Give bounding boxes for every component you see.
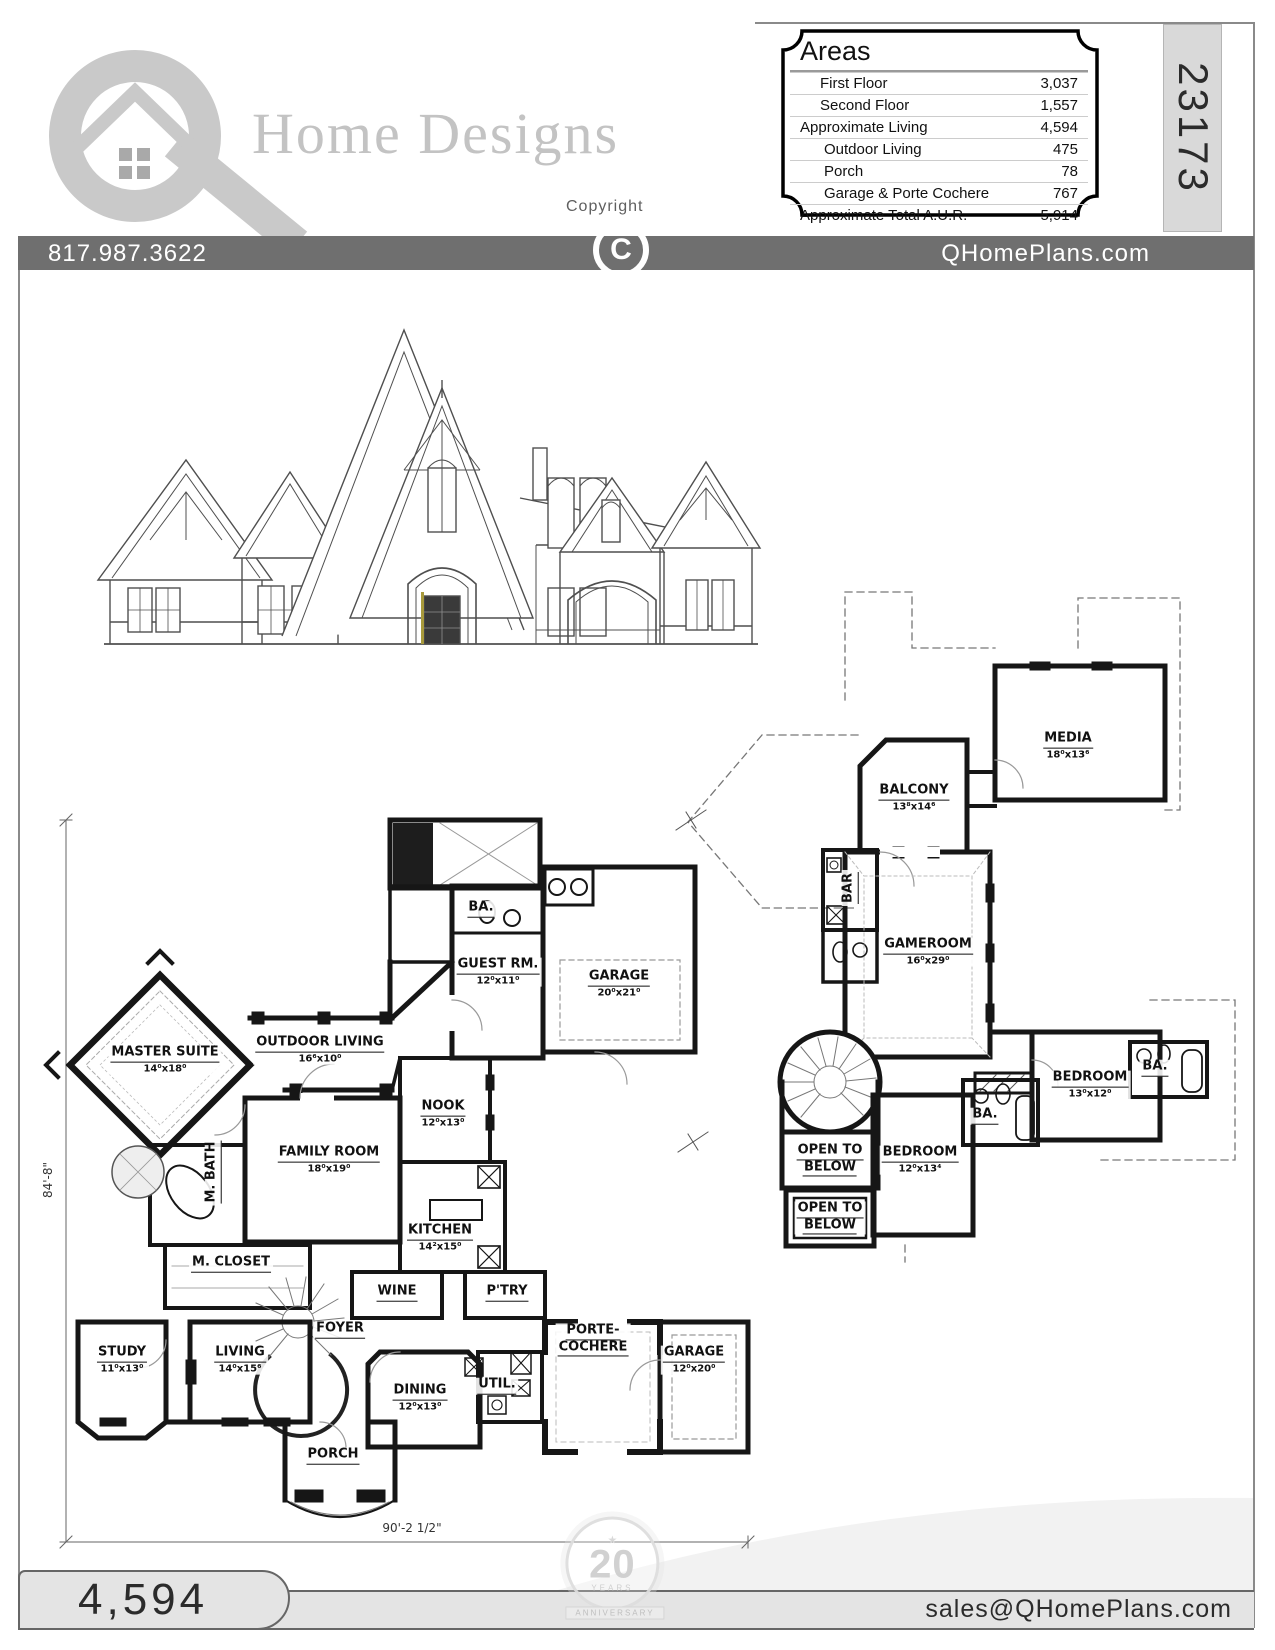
anniversary-wreath-icon: ★ 20 YEARS: [565, 1517, 659, 1611]
elevation-drawing: [98, 330, 760, 644]
room-label-bar: BAR: [842, 870, 859, 906]
room-label-bath-middle: BA.: [969, 1108, 1000, 1125]
room-label-gameroom: GAMEROOM 16⁰x29⁰: [881, 938, 975, 967]
room-label-family-room: FAMILY ROOM 18⁰x19⁰: [276, 1146, 382, 1175]
areas-row-porch: Porch 78: [790, 160, 1088, 182]
room-label-garage-1: GARAGE 20⁰x21⁰: [586, 970, 652, 999]
room-label-master-closet: M. CLOSET: [189, 1256, 273, 1273]
living-area-pill: 4,594: [18, 1570, 290, 1630]
room-label-dining: DINING 12⁰x13⁰: [391, 1384, 450, 1413]
room-label-guest-bath: BA.: [465, 901, 496, 918]
copyright-symbol-icon: C: [593, 222, 649, 278]
room-label-media: MEDIA 18⁰x13⁶: [1041, 732, 1095, 761]
areas-row-first-floor: First Floor 3,037: [790, 72, 1088, 94]
room-label-study: STUDY 11⁰x13⁰: [95, 1346, 149, 1375]
label-open-to-below-2: OPEN TO BELOW: [795, 1201, 866, 1234]
room-label-master-suite: MASTER SUITE 14⁰x18⁰: [108, 1046, 221, 1075]
anniversary-badge: ★ 20 YEARS ANNIVERSARY: [565, 1517, 664, 1620]
label-open-to-below-1: OPEN TO BELOW: [795, 1143, 866, 1176]
room-label-utility: UTIL.: [475, 1378, 518, 1395]
room-label-bedroom-3: BEDROOM 13⁰x12⁰: [1050, 1071, 1131, 1100]
room-label-living: LIVING 14⁰x15⁶: [212, 1346, 268, 1375]
room-label-kitchen: KITCHEN 14²x15⁰: [405, 1224, 475, 1253]
spiral-staircase-second-floor: [780, 1032, 880, 1132]
areas-row-garage-porte-cochere: Garage & Porte Cochere 767: [790, 182, 1088, 204]
room-label-balcony: BALCONY 13⁸x14⁶: [876, 784, 951, 813]
dimension-height-label: 84'-8": [41, 1159, 55, 1201]
room-label-wine: WINE: [375, 1285, 420, 1302]
plan-number-tab: 23173: [1163, 24, 1222, 232]
first-floor-plan: [46, 814, 754, 1548]
room-label-guest-room: GUEST RM. 12⁰x11⁰: [455, 958, 542, 987]
living-area-value: 4,594: [20, 1575, 208, 1625]
room-label-nook: NOOK 12⁰x13⁰: [418, 1100, 467, 1129]
phone-number: 817.987.3622: [48, 240, 207, 268]
areas-table: Areas First Floor 3,037 Second Floor 1,5…: [780, 28, 1100, 218]
sales-email: sales@QHomePlans.com: [925, 1595, 1232, 1624]
room-label-foyer: FOYER: [313, 1322, 367, 1339]
areas-row-approx-living: Approximate Living 4,594: [790, 116, 1088, 138]
room-label-bath-top-right: BA.: [1139, 1060, 1170, 1077]
q-logo-icon: [35, 48, 335, 258]
room-label-porte-cochere: PORTE- COCHERE: [556, 1323, 631, 1356]
areas-row-outdoor-living: Outdoor Living 475: [790, 138, 1088, 160]
room-label-master-bath: M. BATH: [205, 1138, 222, 1205]
website-url: QHomePlans.com: [941, 240, 1150, 268]
anniversary-ribbon: ANNIVERSARY: [565, 1607, 664, 1620]
plan-sheet: Home Designs Copyright C Areas First Flo…: [0, 0, 1275, 1650]
left-border: [18, 236, 20, 1628]
areas-row-second-floor: Second Floor 1,557: [790, 94, 1088, 116]
dimension-width-label: 90'-2 1/2": [379, 1521, 444, 1535]
room-label-garage-2: GARAGE 12⁰x20⁰: [661, 1346, 727, 1375]
areas-row-total-aur: Approximate Total A.U.R. 5,914: [790, 204, 1088, 226]
q-logo: [35, 48, 265, 248]
room-label-outdoor-living: OUTDOOR LIVING 16⁶x10⁰: [253, 1036, 386, 1065]
room-label-pantry: P'TRY: [483, 1285, 530, 1302]
areas-title: Areas: [790, 32, 1088, 72]
room-label-porch: PORCH: [304, 1448, 361, 1465]
room-label-bedroom-2: BEDROOM 12⁰x13⁴: [880, 1146, 961, 1175]
